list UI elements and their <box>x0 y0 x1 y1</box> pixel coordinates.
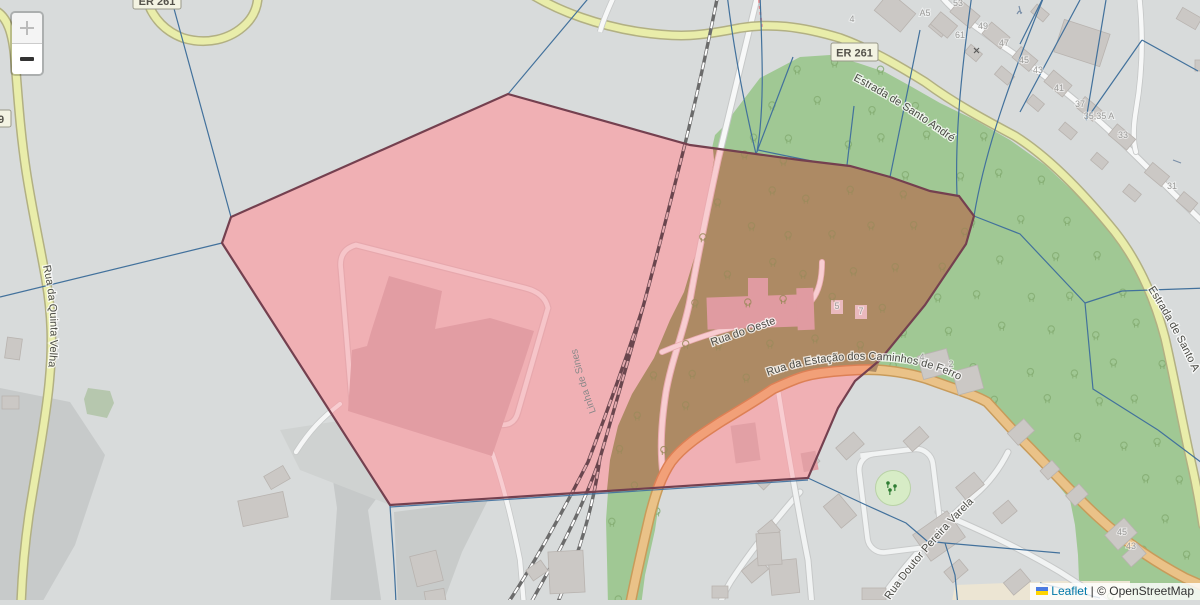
svg-text:43: 43 <box>1126 541 1136 551</box>
svg-text:53: 53 <box>953 0 963 8</box>
svg-text:4: 4 <box>919 352 924 362</box>
svg-text:A5: A5 <box>919 8 930 18</box>
svg-text:45: 45 <box>1117 527 1127 537</box>
svg-text:47: 47 <box>999 38 1009 48</box>
svg-text:33: 33 <box>1118 130 1128 140</box>
svg-text:41: 41 <box>1054 83 1064 93</box>
svg-text:2: 2 <box>948 359 953 369</box>
svg-text:61: 61 <box>955 30 965 40</box>
svg-text:35,35 A: 35,35 A <box>1084 111 1115 121</box>
svg-text:4: 4 <box>849 14 854 24</box>
svg-text:9: 9 <box>0 114 4 126</box>
svg-text:ER 261: ER 261 <box>139 0 176 8</box>
svg-text:ER 261: ER 261 <box>836 48 873 60</box>
svg-text:5: 5 <box>834 301 839 311</box>
svg-text:37: 37 <box>1075 99 1085 109</box>
svg-text:45: 45 <box>1019 55 1029 65</box>
svg-text:43: 43 <box>1033 65 1043 75</box>
svg-text:7: 7 <box>858 306 863 316</box>
svg-text:49: 49 <box>978 21 988 31</box>
svg-text:31: 31 <box>1167 181 1177 191</box>
